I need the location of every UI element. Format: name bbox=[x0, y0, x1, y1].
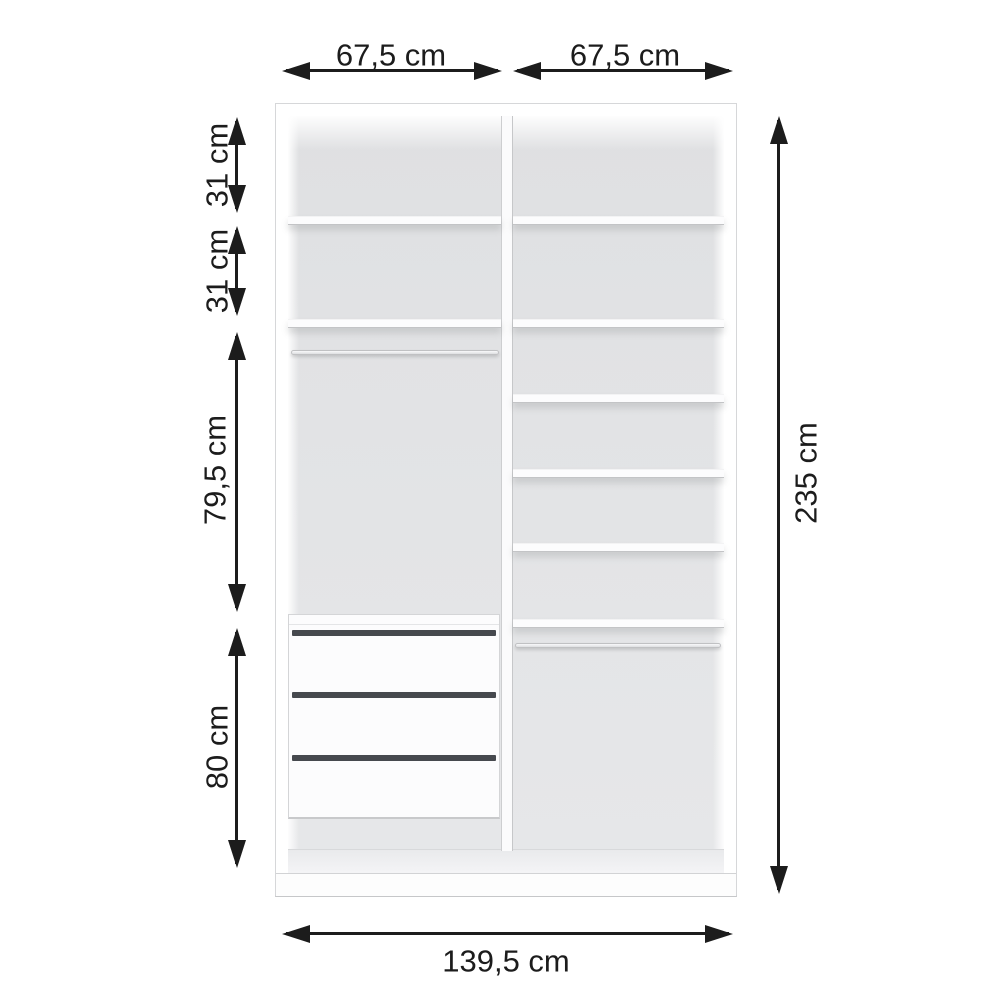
arrow-head-up-icon bbox=[228, 332, 246, 360]
dim-label-second-section-height: 31 cm bbox=[202, 229, 233, 313]
arrow-line bbox=[286, 932, 729, 935]
left-column-clothes-rail bbox=[291, 350, 499, 355]
arrow-head-up-icon bbox=[770, 116, 788, 144]
drawer-1-handle-gap bbox=[292, 630, 496, 636]
left-column-shelf-1 bbox=[288, 216, 501, 225]
right-column-shelf-6 bbox=[513, 619, 724, 628]
drawer-2-handle-gap bbox=[292, 692, 496, 698]
wardrobe-diagram: 67,5 cm 67,5 cm 31 cm 31 cm 79,5 cm 80 c… bbox=[0, 0, 1000, 1000]
dim-label-total-height: 235 cm bbox=[791, 422, 822, 524]
center-divider-panel bbox=[501, 116, 513, 851]
wardrobe-floor bbox=[288, 849, 724, 873]
right-column-shelf-2 bbox=[513, 319, 724, 328]
arrow-head-right-icon bbox=[705, 925, 733, 943]
dim-arrow-total-width bbox=[282, 925, 733, 943]
arrow-head-left-icon bbox=[282, 925, 310, 943]
dim-arrow-total-height bbox=[770, 116, 788, 894]
drawer-3 bbox=[289, 755, 499, 818]
dim-label-drawer-section-height: 80 cm bbox=[202, 705, 233, 789]
right-column-shelf-3 bbox=[513, 394, 724, 403]
drawer-2 bbox=[289, 692, 499, 755]
wardrobe-cabinet bbox=[275, 103, 737, 897]
arrow-head-down-icon bbox=[228, 840, 246, 868]
dim-label-left-column-width: 67,5 cm bbox=[336, 40, 446, 71]
wardrobe-plinth bbox=[276, 873, 736, 896]
right-column-shelf-4 bbox=[513, 469, 724, 478]
arrow-line bbox=[235, 632, 238, 864]
drawer-unit bbox=[288, 614, 500, 819]
arrow-head-right-icon bbox=[705, 62, 733, 80]
arrow-line bbox=[777, 120, 780, 890]
dim-label-total-width: 139,5 cm bbox=[442, 946, 570, 977]
right-column-shelf-5 bbox=[513, 543, 724, 552]
left-column-shelf-2 bbox=[288, 319, 501, 328]
arrow-head-left-icon bbox=[513, 62, 541, 80]
dim-label-top-section-height: 31 cm bbox=[202, 123, 233, 207]
interior-right-wall bbox=[713, 116, 724, 849]
drawer-3-handle-gap bbox=[292, 755, 496, 761]
right-column-clothes-rail bbox=[515, 643, 721, 648]
right-column-shelf-1 bbox=[513, 216, 724, 225]
arrow-head-up-icon bbox=[228, 628, 246, 656]
dim-label-hanging-section-height: 79,5 cm bbox=[200, 415, 231, 525]
arrow-head-down-icon bbox=[228, 584, 246, 612]
arrow-head-down-icon bbox=[770, 866, 788, 894]
arrow-head-left-icon bbox=[282, 62, 310, 80]
arrow-line bbox=[235, 336, 238, 608]
dim-label-right-column-width: 67,5 cm bbox=[570, 40, 680, 71]
arrow-head-right-icon bbox=[474, 62, 502, 80]
